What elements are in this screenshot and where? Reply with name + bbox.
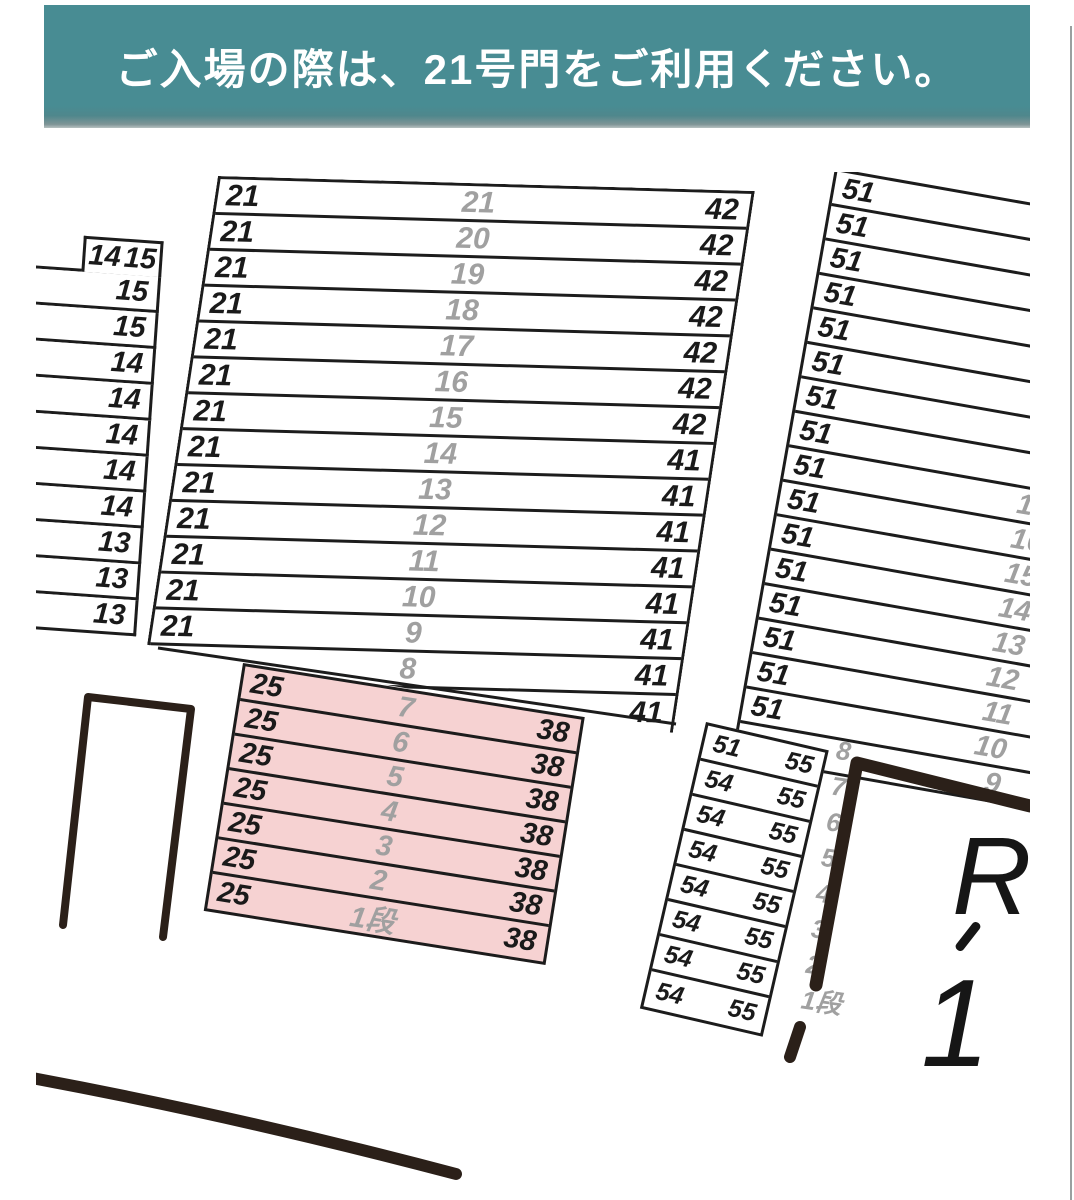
section-number-left: 54 — [661, 940, 695, 975]
row-number: 2 — [804, 946, 849, 987]
stadium-seating-map: 141515151414141414131313 212142212042211… — [36, 172, 1030, 1200]
row-number: 7 — [829, 768, 874, 809]
section-number-left: 54 — [702, 765, 736, 800]
section-number-right: 55 — [782, 746, 816, 781]
section-number-left: 54 — [678, 870, 712, 905]
section-number-right: 55 — [734, 957, 768, 992]
gate-label-r: R — [952, 822, 1030, 932]
section-number-right: 55 — [766, 816, 800, 851]
section-number-right: 55 — [742, 922, 776, 957]
section-number-left: 51 — [710, 730, 744, 765]
block-bottom-edge-line — [36, 172, 1030, 1200]
section-number-right: 55 — [774, 781, 808, 816]
seating-map-page: ご入場の際は、21号門をご利用ください。 1415151514141414141… — [0, 0, 1074, 1200]
row-number: 1段 — [799, 982, 844, 1023]
entrance-notice-banner: ご入場の際は、21号門をご利用ください。 — [44, 5, 1030, 128]
row-number: 8 — [834, 732, 879, 773]
row-number: 6 — [824, 803, 869, 844]
section-number-left: 54 — [686, 835, 720, 870]
section-number-left: 54 — [653, 977, 687, 1012]
entrance-notice-text: ご入場の際は、21号門をご利用ください。 — [116, 36, 959, 97]
section-number-right: 55 — [758, 851, 792, 886]
gate-label-1: 1 — [921, 962, 990, 1086]
row-number: 3 — [809, 910, 854, 951]
section-number-left: 54 — [670, 905, 704, 940]
right-edge-line — [1070, 26, 1072, 1200]
highlighted-seating-block: 257382563825538254382533825238251段38 — [204, 663, 585, 965]
section-number-right: 55 — [725, 993, 759, 1028]
section-number-right: 55 — [750, 887, 784, 922]
row-number: 5 — [819, 839, 864, 880]
row-number: 4 — [814, 875, 859, 916]
section-number-left: 54 — [694, 800, 728, 835]
